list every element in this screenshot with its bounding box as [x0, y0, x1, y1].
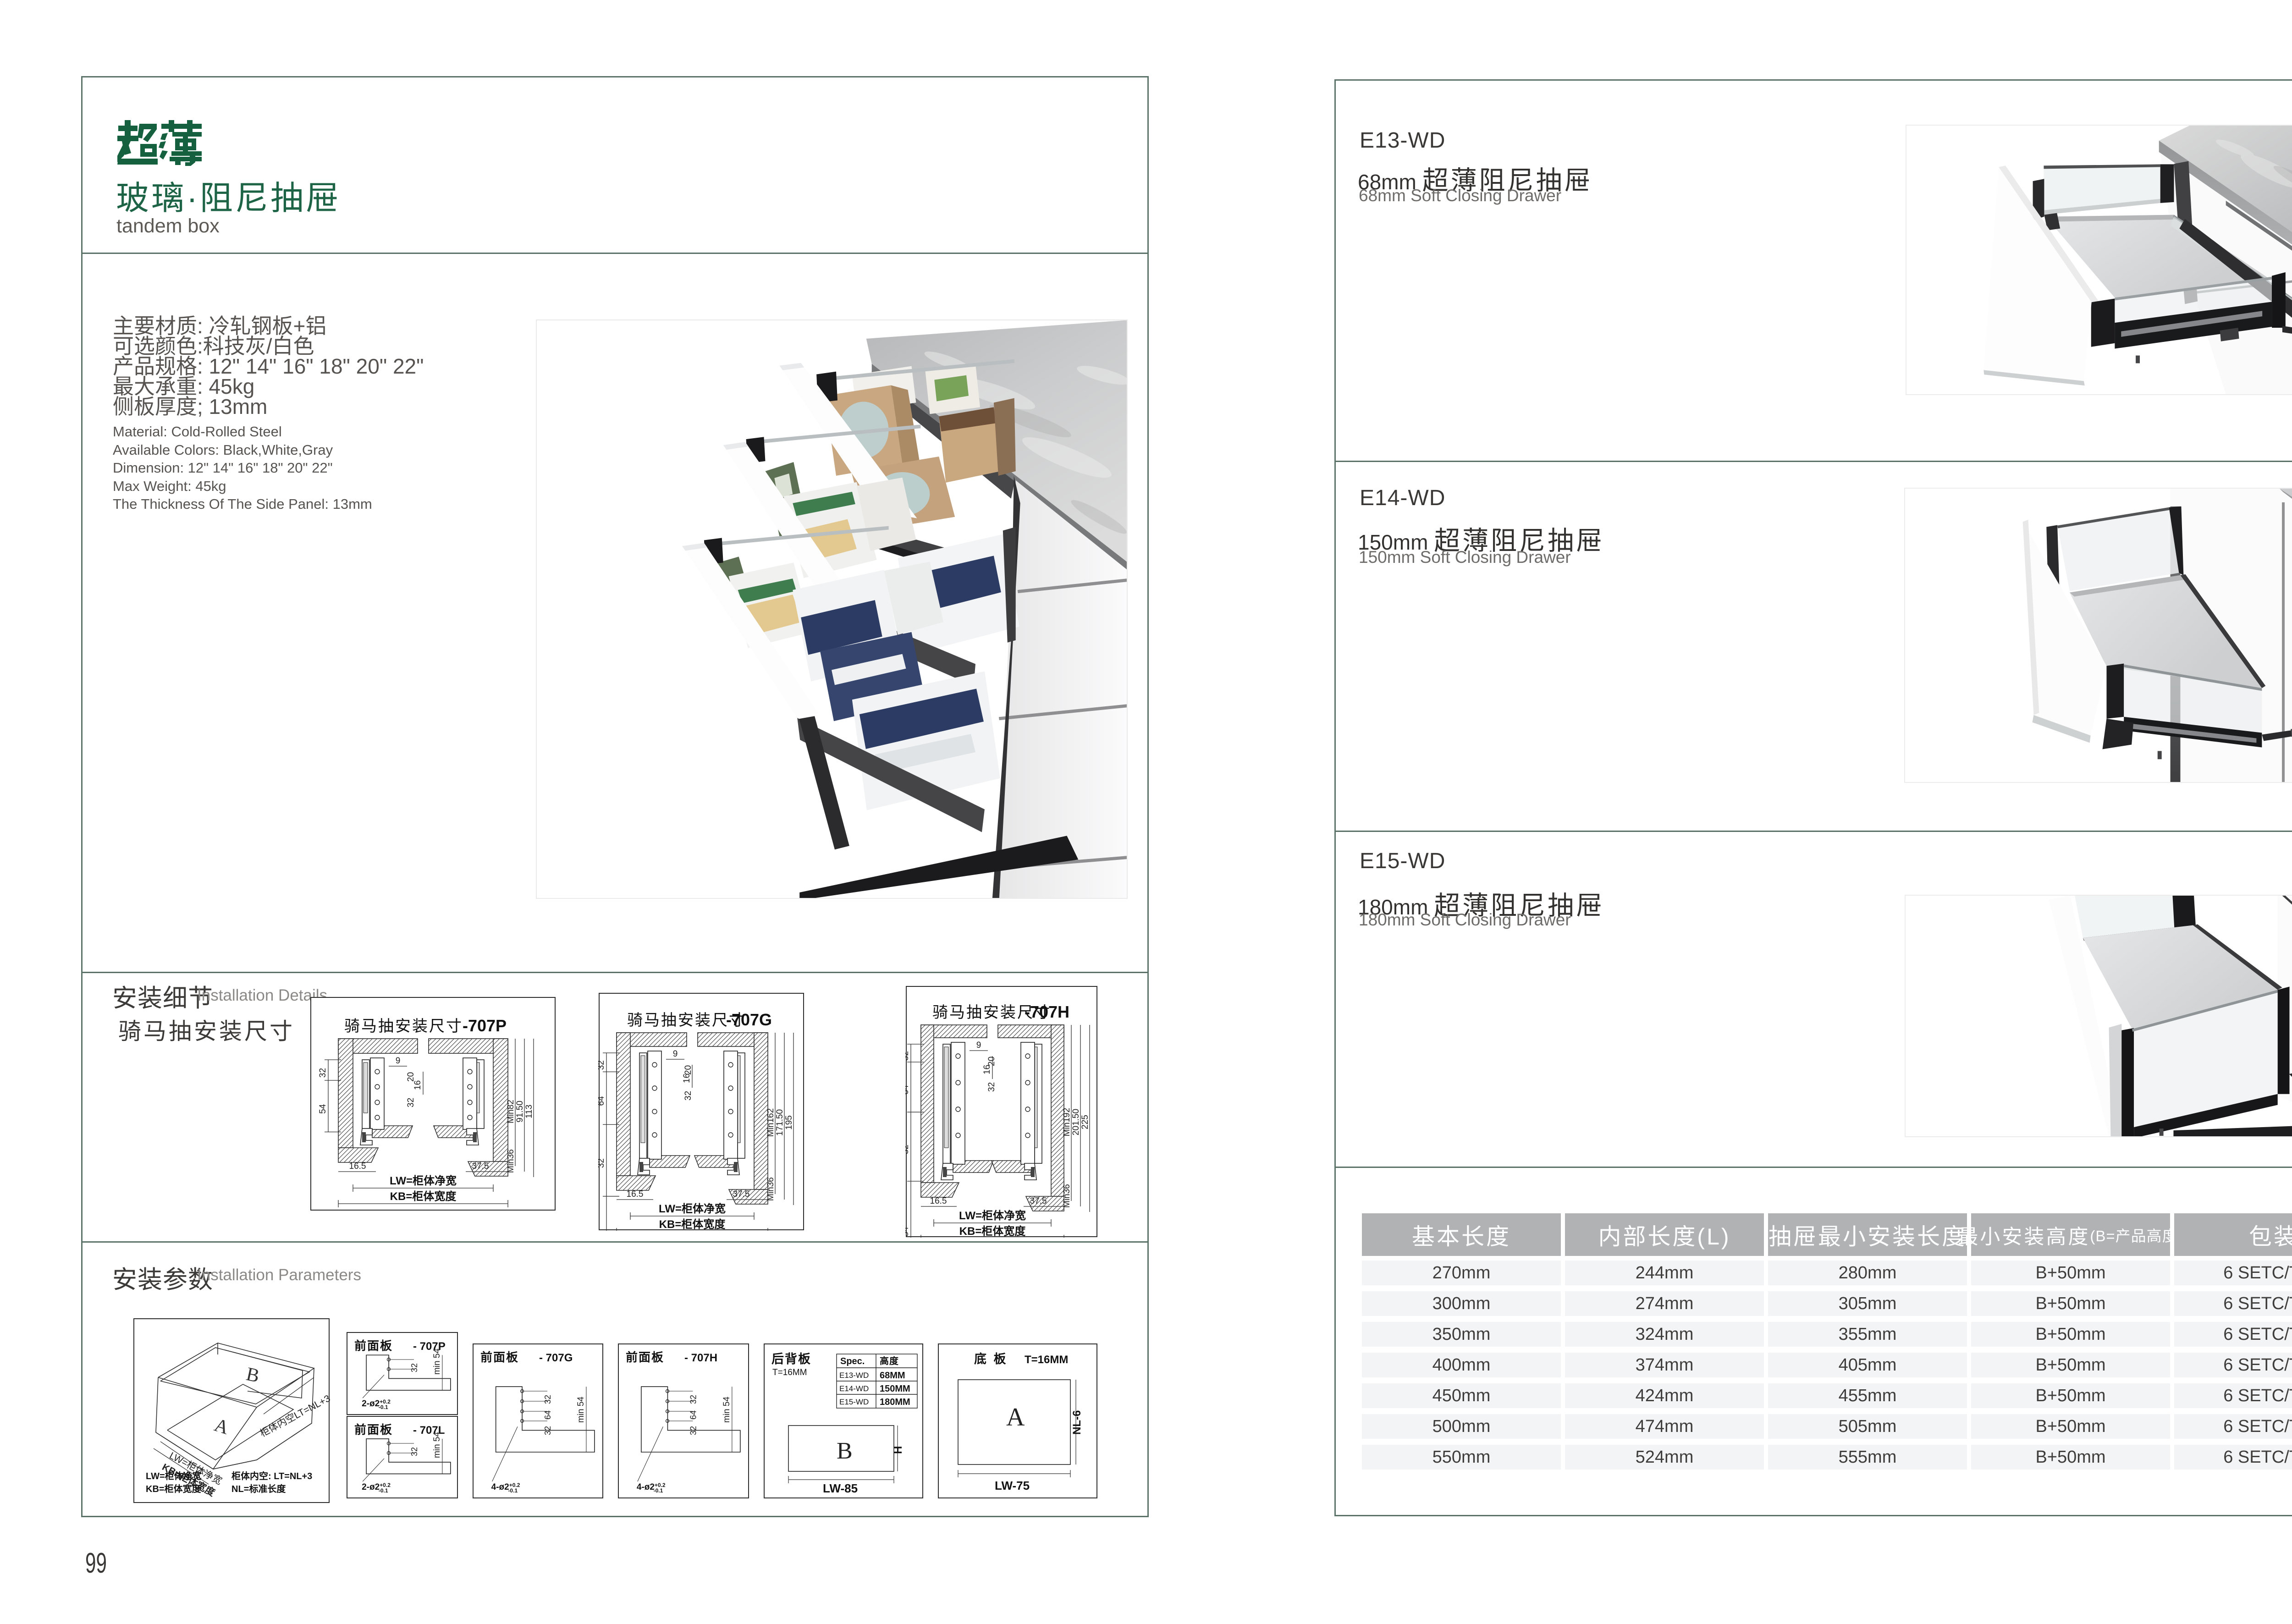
- svg-text:16.5: 16.5: [627, 1189, 644, 1199]
- svg-text:前面板: 前面板: [626, 1350, 664, 1364]
- svg-text:Min82: Min82: [506, 1100, 516, 1123]
- svg-text:Spec.: Spec.: [840, 1356, 865, 1366]
- svg-text:32: 32: [987, 1082, 997, 1092]
- svg-text:16: 16: [413, 1080, 423, 1090]
- svg-text:NL-6: NL-6: [1071, 1410, 1083, 1435]
- svg-text:150MM: 150MM: [880, 1384, 910, 1394]
- svg-text:Min36: Min36: [766, 1177, 776, 1201]
- svg-text:Min36: Min36: [506, 1149, 516, 1173]
- svg-text:32: 32: [689, 1426, 698, 1435]
- svg-text:32: 32: [905, 1145, 910, 1154]
- svg-text:-707P: -707P: [463, 1016, 507, 1035]
- svg-text:LW=柜体净宽: LW=柜体净宽: [959, 1209, 1026, 1222]
- svg-text:9: 9: [976, 1040, 981, 1050]
- svg-text:高度: 高度: [880, 1355, 899, 1366]
- svg-text:32: 32: [543, 1395, 552, 1404]
- svg-text:H: H: [892, 1446, 904, 1454]
- svg-text:64: 64: [905, 1085, 910, 1095]
- svg-text:64: 64: [543, 1410, 552, 1420]
- svg-text:E14-WD: E14-WD: [839, 1384, 869, 1393]
- svg-text:32: 32: [598, 1158, 606, 1168]
- svg-text:KB=柜体宽度: KB=柜体宽度: [146, 1483, 202, 1494]
- svg-text:E13-WD: E13-WD: [839, 1371, 869, 1380]
- svg-text:Min36: Min36: [1062, 1184, 1072, 1208]
- svg-text:32: 32: [683, 1091, 693, 1101]
- svg-text:KB=柜体宽度: KB=柜体宽度: [390, 1190, 457, 1203]
- svg-text:前面板: 前面板: [354, 1339, 393, 1353]
- svg-text:37.5: 37.5: [733, 1189, 750, 1199]
- svg-text:min 54: min 54: [722, 1397, 732, 1423]
- svg-text:113: 113: [524, 1105, 534, 1118]
- svg-text:171.50: 171.50: [775, 1109, 785, 1136]
- svg-text:20: 20: [406, 1072, 416, 1082]
- svg-text:91.50: 91.50: [515, 1101, 525, 1123]
- svg-text:LW=柜体净宽: LW=柜体净宽: [659, 1202, 726, 1215]
- svg-text:201.50: 201.50: [1071, 1109, 1081, 1135]
- svg-text:B: B: [837, 1438, 853, 1464]
- svg-text:32: 32: [318, 1068, 328, 1078]
- svg-text:T=16MM: T=16MM: [772, 1368, 807, 1377]
- svg-text:A: A: [1006, 1403, 1025, 1431]
- svg-text:32: 32: [689, 1395, 698, 1404]
- svg-text:骑马抽安装尺寸: 骑马抽安装尺寸: [344, 1018, 463, 1035]
- svg-text:min 54: min 54: [432, 1432, 442, 1458]
- svg-text:16: 16: [682, 1073, 692, 1083]
- svg-text:min 54: min 54: [576, 1397, 586, 1423]
- svg-text:9: 9: [396, 1056, 401, 1066]
- svg-text:T=16MM: T=16MM: [1025, 1354, 1068, 1366]
- svg-text:-707G: -707G: [726, 1010, 772, 1029]
- svg-text:底 板: 底 板: [974, 1352, 1008, 1366]
- svg-text:64: 64: [689, 1410, 698, 1420]
- svg-text:32: 32: [905, 1051, 910, 1061]
- svg-text:KB=柜体宽度: KB=柜体宽度: [959, 1225, 1026, 1238]
- svg-text:68MM: 68MM: [880, 1371, 905, 1381]
- svg-text:9: 9: [673, 1049, 678, 1059]
- svg-text:32: 32: [410, 1447, 419, 1456]
- svg-text:前面板: 前面板: [354, 1423, 393, 1437]
- svg-text:Min162: Min162: [766, 1108, 776, 1137]
- svg-text:16: 16: [982, 1065, 992, 1074]
- svg-text:180MM: 180MM: [880, 1397, 910, 1407]
- svg-text:16.5: 16.5: [349, 1162, 366, 1171]
- svg-text:LW=柜体净宽: LW=柜体净宽: [390, 1174, 457, 1187]
- svg-text:NL=标准长度: NL=标准长度: [231, 1483, 286, 1494]
- svg-text:- 707H: - 707H: [684, 1352, 717, 1364]
- svg-text:32: 32: [543, 1426, 552, 1435]
- svg-text:195: 195: [784, 1115, 794, 1130]
- svg-text:37.5: 37.5: [1030, 1196, 1047, 1206]
- svg-text:32: 32: [598, 1060, 606, 1070]
- svg-text:E15-WD: E15-WD: [839, 1398, 869, 1406]
- svg-text:- 707G: - 707G: [539, 1352, 573, 1364]
- svg-text:后背板: 后背板: [771, 1352, 811, 1366]
- svg-text:Min192: Min192: [1062, 1108, 1072, 1136]
- svg-text:LW=柜体净宽: LW=柜体净宽: [146, 1470, 202, 1481]
- svg-text:64: 64: [598, 1096, 606, 1106]
- svg-text:32: 32: [406, 1098, 416, 1107]
- svg-text:LW-85: LW-85: [823, 1481, 858, 1495]
- svg-text:225: 225: [1080, 1115, 1090, 1129]
- svg-text:37.5: 37.5: [472, 1162, 489, 1171]
- svg-text:-707H: -707H: [1025, 1002, 1069, 1021]
- svg-text:16.5: 16.5: [930, 1196, 947, 1206]
- svg-text:min 54: min 54: [432, 1349, 442, 1375]
- svg-text:54: 54: [318, 1104, 328, 1114]
- svg-text:KB=柜体宽度: KB=柜体宽度: [659, 1218, 726, 1231]
- svg-text:54: 54: [905, 1227, 910, 1237]
- svg-text:柜体内空: LT=NL+3: 柜体内空: LT=NL+3: [231, 1470, 312, 1481]
- svg-text:20: 20: [683, 1065, 693, 1075]
- svg-text:20: 20: [987, 1057, 997, 1066]
- svg-text:前面板: 前面板: [480, 1350, 519, 1364]
- svg-text:LW-75: LW-75: [995, 1479, 1030, 1492]
- svg-text:32: 32: [410, 1363, 419, 1372]
